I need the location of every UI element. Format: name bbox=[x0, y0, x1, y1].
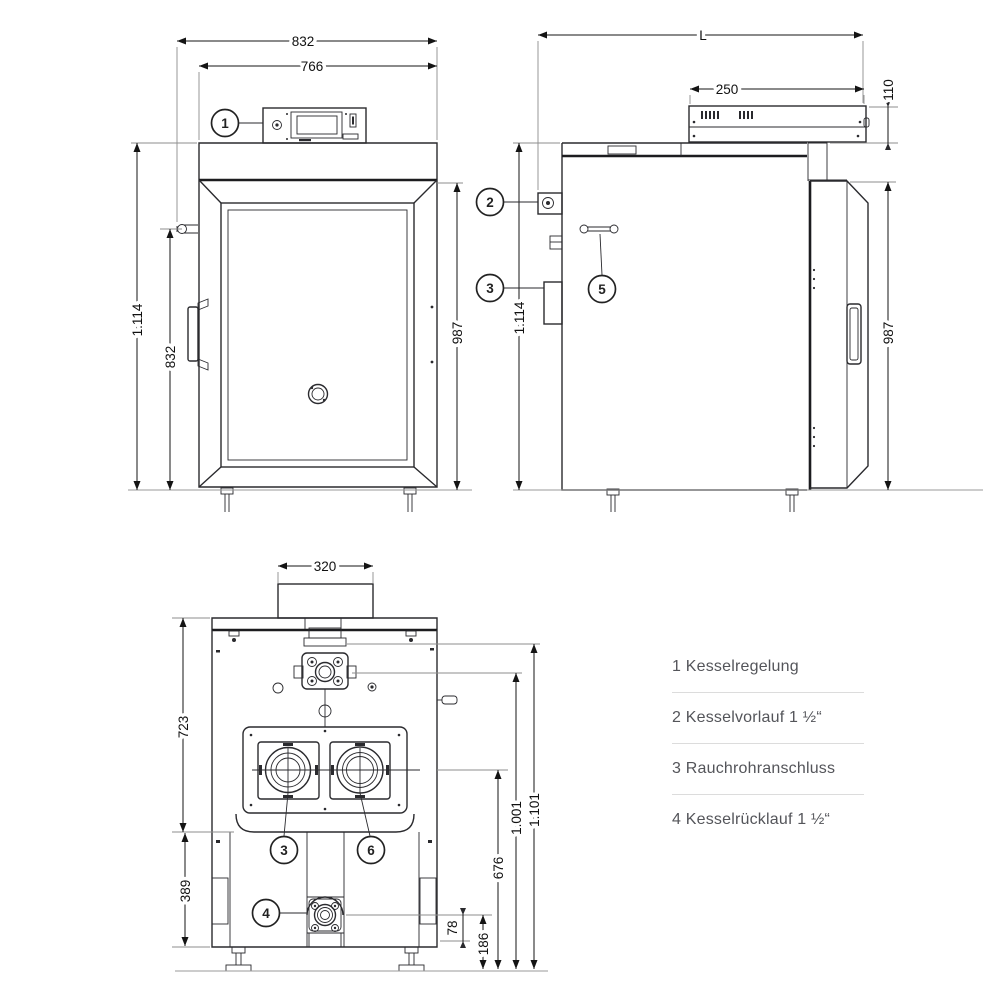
dim-front-body-height: 987 bbox=[437, 183, 465, 490]
small-port bbox=[273, 683, 283, 693]
vorlauf-valve-assembly bbox=[294, 628, 356, 727]
legend-text: 4 Kesselrücklauf 1 ½“ bbox=[672, 811, 830, 829]
flue-port-right bbox=[330, 742, 390, 799]
callout-number: 3 bbox=[280, 843, 288, 858]
vorlauf-fitting bbox=[538, 193, 562, 214]
callout-6: 6 bbox=[358, 793, 385, 864]
rear-side-handle bbox=[437, 696, 457, 704]
callout-4: 4 bbox=[253, 900, 308, 927]
callout-3-side: 3 bbox=[477, 275, 545, 302]
dim-side-total-height: 1.114 bbox=[512, 143, 560, 490]
dim-rear-ruecklauf-height: 186 bbox=[476, 915, 491, 969]
front-door-handle bbox=[188, 299, 208, 370]
front-door bbox=[199, 180, 437, 487]
side-feet bbox=[607, 489, 798, 512]
dim-label: 987 bbox=[450, 322, 465, 345]
dim-front-total-height: 1.114 bbox=[130, 143, 197, 490]
rear-view: 320 723 389 676 1.001 1.101 bbox=[172, 559, 548, 971]
dim-label: 320 bbox=[314, 559, 337, 574]
dim-rear-flue-width: 320 bbox=[278, 559, 373, 583]
dim-side-panel-width: 250 bbox=[690, 82, 864, 104]
small-bolt bbox=[368, 683, 376, 691]
dim-front-door-height: 832 bbox=[160, 229, 182, 490]
dim-label: 1.001 bbox=[509, 801, 524, 835]
flue-port-left bbox=[258, 742, 319, 799]
callout-number: 2 bbox=[486, 195, 494, 210]
dim-label: 250 bbox=[716, 82, 739, 97]
legend-text: 1 Kesselregelung bbox=[672, 658, 799, 676]
legend-item-kesselvorlauf: 2 Kesselvorlauf 1 ½“ bbox=[672, 693, 864, 744]
dim-label: 389 bbox=[178, 880, 193, 903]
legend-item-kesselruecklauf: 4 Kesselrücklauf 1 ½“ bbox=[672, 795, 864, 845]
legend-item-kesselregelung: 1 Kesselregelung bbox=[672, 642, 864, 693]
side-door-handle bbox=[847, 304, 861, 364]
dim-label: 987 bbox=[881, 322, 896, 345]
cleaning-lever bbox=[580, 225, 618, 233]
callout-1: 1 bbox=[212, 110, 264, 137]
dim-side-length: L bbox=[538, 28, 863, 190]
callout-number: 4 bbox=[262, 906, 270, 921]
callout-5: 5 bbox=[589, 234, 616, 303]
callout-3-rear: 3 bbox=[271, 793, 298, 864]
dim-label: 110 bbox=[881, 79, 896, 101]
ruecklauf-fitting bbox=[307, 832, 344, 947]
dim-label: 1.101 bbox=[527, 793, 542, 827]
dim-label: 676 bbox=[491, 857, 506, 880]
callout-number: 1 bbox=[221, 116, 229, 131]
boiler-dimension-drawing: 832 766 1.114 832 987 1 bbox=[0, 0, 1000, 1000]
dim-label: 1.114 bbox=[512, 301, 527, 334]
dim-rear-upper-height: 723 bbox=[172, 618, 234, 832]
rear-feet bbox=[226, 947, 424, 971]
screw-dot bbox=[431, 306, 434, 309]
screw-dot bbox=[431, 361, 434, 364]
legend: 1 Kesselregelung 2 Kesselvorlauf 1 ½“ 3 … bbox=[672, 642, 864, 845]
legend-text: 2 Kesselvorlauf 1 ½“ bbox=[672, 709, 822, 727]
flue-outlet bbox=[278, 584, 373, 631]
drawing-canvas: 832 766 1.114 832 987 1 bbox=[0, 0, 1000, 1000]
sight-glass bbox=[309, 385, 328, 404]
dim-side-body-height: 987 bbox=[850, 182, 896, 490]
dim-label: 832 bbox=[292, 34, 315, 49]
front-view: 832 766 1.114 832 987 1 bbox=[128, 34, 472, 512]
legend-text: 3 Rauchrohranschluss bbox=[672, 760, 835, 778]
dim-label: 766 bbox=[301, 59, 324, 74]
side-door bbox=[810, 181, 868, 490]
rauchrohr-stub bbox=[544, 282, 562, 324]
callout-number: 5 bbox=[598, 282, 606, 297]
dim-side-panel-height: 110 bbox=[830, 79, 898, 150]
front-feet bbox=[221, 488, 416, 512]
dim-label: L bbox=[699, 28, 707, 43]
dim-label: 723 bbox=[176, 716, 191, 739]
dim-rear-lower-height: 389 bbox=[172, 833, 210, 947]
side-view: L 250 110 987 1.114 bbox=[477, 28, 984, 512]
boiler-control-panel bbox=[263, 108, 366, 143]
dim-rear-flue-center-height: 676 bbox=[437, 770, 508, 969]
small-fitting bbox=[550, 236, 562, 249]
callout-number: 6 bbox=[367, 843, 375, 858]
callout-2: 2 bbox=[477, 189, 539, 216]
front-top-band bbox=[199, 143, 437, 180]
dim-label: 78 bbox=[445, 920, 460, 935]
dim-label: 186 bbox=[476, 933, 491, 956]
legend-item-rauchrohranschluss: 3 Rauchrohranschluss bbox=[672, 744, 864, 795]
side-body bbox=[562, 143, 847, 490]
dim-label: 832 bbox=[163, 346, 178, 369]
side-control-box bbox=[689, 106, 869, 142]
dim-label: 1.114 bbox=[130, 303, 145, 336]
callout-number: 3 bbox=[486, 281, 494, 296]
